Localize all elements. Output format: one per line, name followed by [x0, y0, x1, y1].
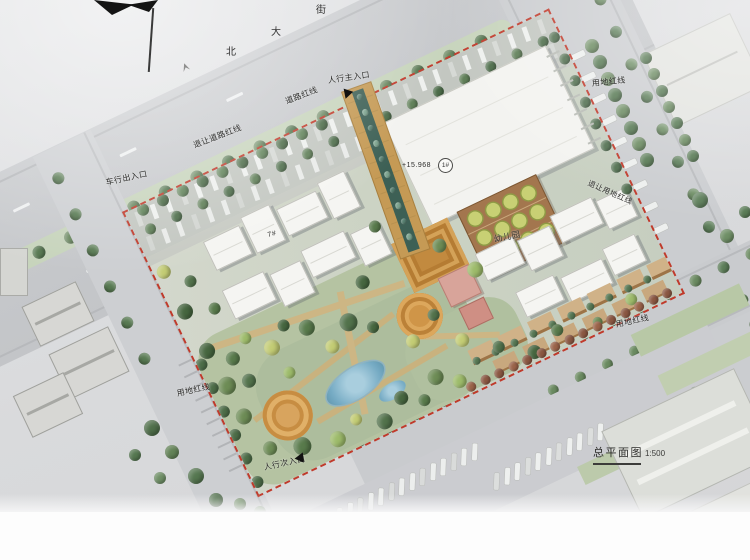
- parking-stall: [521, 26, 530, 42]
- parking-stall: [250, 186, 259, 202]
- street-name-char: 北: [226, 43, 236, 58]
- roof-line: [281, 278, 305, 290]
- car: [494, 473, 500, 490]
- tree: [129, 449, 141, 461]
- parking-stall: [328, 119, 337, 135]
- tree: [639, 89, 655, 105]
- north-arrow-needle: [148, 8, 154, 72]
- tree: [593, 55, 607, 69]
- roof-line: [528, 242, 554, 255]
- tree: [143, 221, 158, 236]
- existing-building: [0, 248, 28, 296]
- plan-scale: 1:500: [645, 449, 665, 458]
- master-plan-map: 街 大 北 人行主入口 道路红线 退让道路红线 车行出入口 用地红线 退让用地红…: [0, 0, 750, 512]
- tree: [221, 184, 236, 199]
- roof-line: [232, 287, 267, 304]
- parking-stall: [477, 48, 486, 64]
- parking-stall: [220, 200, 229, 216]
- tree: [720, 229, 734, 243]
- tree: [632, 137, 646, 151]
- roof-planter: [466, 209, 485, 228]
- car: [461, 448, 467, 465]
- tree: [102, 279, 118, 295]
- tree: [640, 153, 654, 167]
- car: [504, 468, 510, 485]
- roof-planter: [510, 211, 529, 230]
- car: [399, 478, 405, 495]
- car: [451, 453, 457, 470]
- parking-stall: [235, 193, 244, 209]
- parking-stall: [280, 172, 289, 188]
- elevation-annotation: +15.968: [402, 162, 431, 170]
- roof-planter: [519, 184, 538, 203]
- roof-planter: [528, 203, 547, 222]
- parking-stall: [492, 41, 501, 57]
- tree: [624, 121, 638, 135]
- bottom-fade: [0, 494, 750, 512]
- parking-stall-line: [223, 453, 236, 460]
- tree: [608, 24, 624, 40]
- tree: [692, 192, 708, 208]
- parking-stall: [447, 62, 456, 78]
- roof-line: [286, 206, 319, 222]
- site-plan-page: 街 大 北 人行主入口 道路红线 退让道路红线 车行出入口 用地红线 退让用地红…: [0, 0, 750, 560]
- car: [430, 463, 436, 480]
- tree: [679, 134, 691, 146]
- parking-stall-line: [218, 441, 231, 448]
- car: [440, 458, 446, 475]
- lane-marking: [119, 147, 137, 157]
- roof-planter: [501, 192, 520, 211]
- tree: [188, 468, 204, 484]
- tree: [701, 219, 717, 235]
- car: [514, 463, 520, 480]
- north-arrow-icon: [92, 0, 172, 82]
- plan-title-underline: [593, 463, 641, 465]
- plan-title-block: 总平面图 1:500: [593, 443, 643, 465]
- parking-stall: [310, 157, 319, 173]
- parking-stall: [339, 143, 348, 159]
- tree: [50, 170, 66, 186]
- car: [525, 458, 531, 475]
- roof-planter: [475, 228, 494, 247]
- parking-stall: [209, 176, 218, 192]
- tree: [739, 206, 750, 218]
- roof-line: [26, 393, 69, 416]
- parking-stall: [536, 19, 545, 35]
- parking-stall: [295, 164, 304, 180]
- lane-marking: [13, 202, 31, 212]
- car: [556, 443, 562, 460]
- roof-line: [310, 246, 347, 264]
- roof-line: [361, 239, 381, 249]
- parking-stall: [265, 179, 274, 195]
- roof-line: [63, 349, 115, 376]
- roof-line: [329, 190, 349, 200]
- roof-line: [560, 212, 595, 229]
- parking-stall-line: [184, 370, 197, 377]
- parking-stall-line: [206, 417, 219, 424]
- parking-stall-line: [178, 359, 191, 366]
- plan-title: 总平面图: [593, 447, 643, 459]
- parking-stall: [462, 55, 471, 71]
- car: [577, 433, 583, 450]
- tree: [654, 121, 670, 137]
- building-number-badge: 1#: [438, 158, 453, 173]
- tree: [119, 315, 135, 331]
- caption-band: 总体布局: [0, 512, 750, 560]
- parking-stall: [176, 221, 185, 237]
- car: [587, 428, 593, 445]
- car: [546, 448, 552, 465]
- tree: [687, 150, 699, 162]
- roof-line: [667, 51, 738, 86]
- car: [471, 444, 477, 461]
- north-arrow-blade: [94, 0, 134, 15]
- car: [566, 438, 572, 455]
- parking-stall-line: [212, 429, 225, 436]
- parking-stall: [432, 69, 441, 85]
- parking-stall: [161, 228, 170, 244]
- lane-marking: [226, 92, 244, 102]
- parking-stall: [205, 207, 214, 223]
- parking-stall: [387, 90, 396, 106]
- parking-stall: [268, 147, 277, 163]
- car: [535, 453, 541, 470]
- tree: [154, 472, 166, 484]
- parking-stall: [402, 83, 411, 99]
- car: [420, 468, 426, 485]
- tree: [640, 52, 652, 64]
- tree: [592, 0, 608, 7]
- tree: [585, 39, 599, 53]
- tree: [326, 134, 341, 149]
- tree: [648, 68, 660, 80]
- tree: [716, 259, 732, 275]
- parking-stall: [149, 204, 158, 220]
- roof-line: [606, 204, 628, 215]
- parking-stall: [417, 76, 426, 92]
- parking-stall: [507, 34, 516, 50]
- tree: [144, 420, 160, 436]
- parking-stall: [191, 214, 200, 230]
- parking-stall: [325, 150, 334, 166]
- tree: [688, 273, 704, 289]
- roof-line: [213, 241, 242, 256]
- roof-planter: [484, 201, 503, 220]
- tree: [247, 171, 262, 186]
- roof-line: [525, 289, 556, 305]
- roof-line: [35, 301, 81, 325]
- tree: [165, 445, 179, 459]
- parking-stall: [146, 235, 155, 251]
- car: [409, 473, 415, 490]
- tree: [656, 85, 668, 97]
- street-name-char: 街: [316, 1, 326, 16]
- tree: [670, 154, 686, 170]
- tree: [136, 351, 152, 367]
- street-name-char: 大: [271, 23, 281, 38]
- road-marking: [181, 62, 190, 72]
- roof-line: [485, 252, 516, 268]
- parking-stall-line: [201, 406, 214, 413]
- tree: [68, 206, 84, 222]
- tree: [85, 242, 101, 258]
- tree: [623, 56, 639, 72]
- roof-line: [612, 249, 638, 262]
- parking-stall-line: [229, 464, 242, 471]
- parking-stall-line: [195, 394, 208, 401]
